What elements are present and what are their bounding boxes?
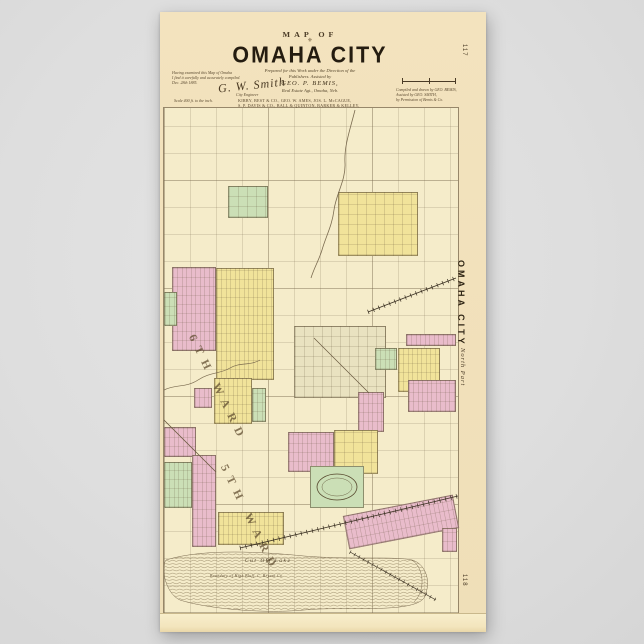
lake-label: Cut Off Lake [245,558,291,564]
map-title: OMAHA CITY [157,43,463,69]
page-number-top: 117 [461,44,467,57]
edge-label-north-part: North Part [459,348,466,386]
credit-line: by Permission of Bemis & Co. [396,98,472,103]
poster-bottom-curl [160,613,486,632]
signature-subtext: City Engineer [236,92,258,97]
diagonal-road-sw [164,420,216,472]
diagonal-street-central [314,338,369,393]
railroad-south [240,496,458,548]
bluff-note: Boundary of High Bluff, C. Bryant Co. [210,574,284,578]
map-canvas: 6TH WARD 5TH WARD Cut Off Lake Boundary … [164,108,458,613]
scale-tick [455,78,456,84]
credits-block: Compiled and drawn by GEO. BEMIS, Assist… [396,88,472,103]
scale-caption: Scale 400 ft. to the inch. [174,98,213,103]
scale-tick [429,78,430,84]
bluff-hachure [164,552,428,611]
scale-bar [402,78,456,84]
map-of-kicker: MAP OF [160,30,460,38]
page-number-bottom: 118 [461,574,467,587]
map-poster: MAP OF ⚜ OMAHA CITY Prepared for this Wo… [160,12,486,631]
creek-north [311,110,355,278]
driving-park-oval-inner [322,478,352,496]
scale-tick [402,78,403,84]
